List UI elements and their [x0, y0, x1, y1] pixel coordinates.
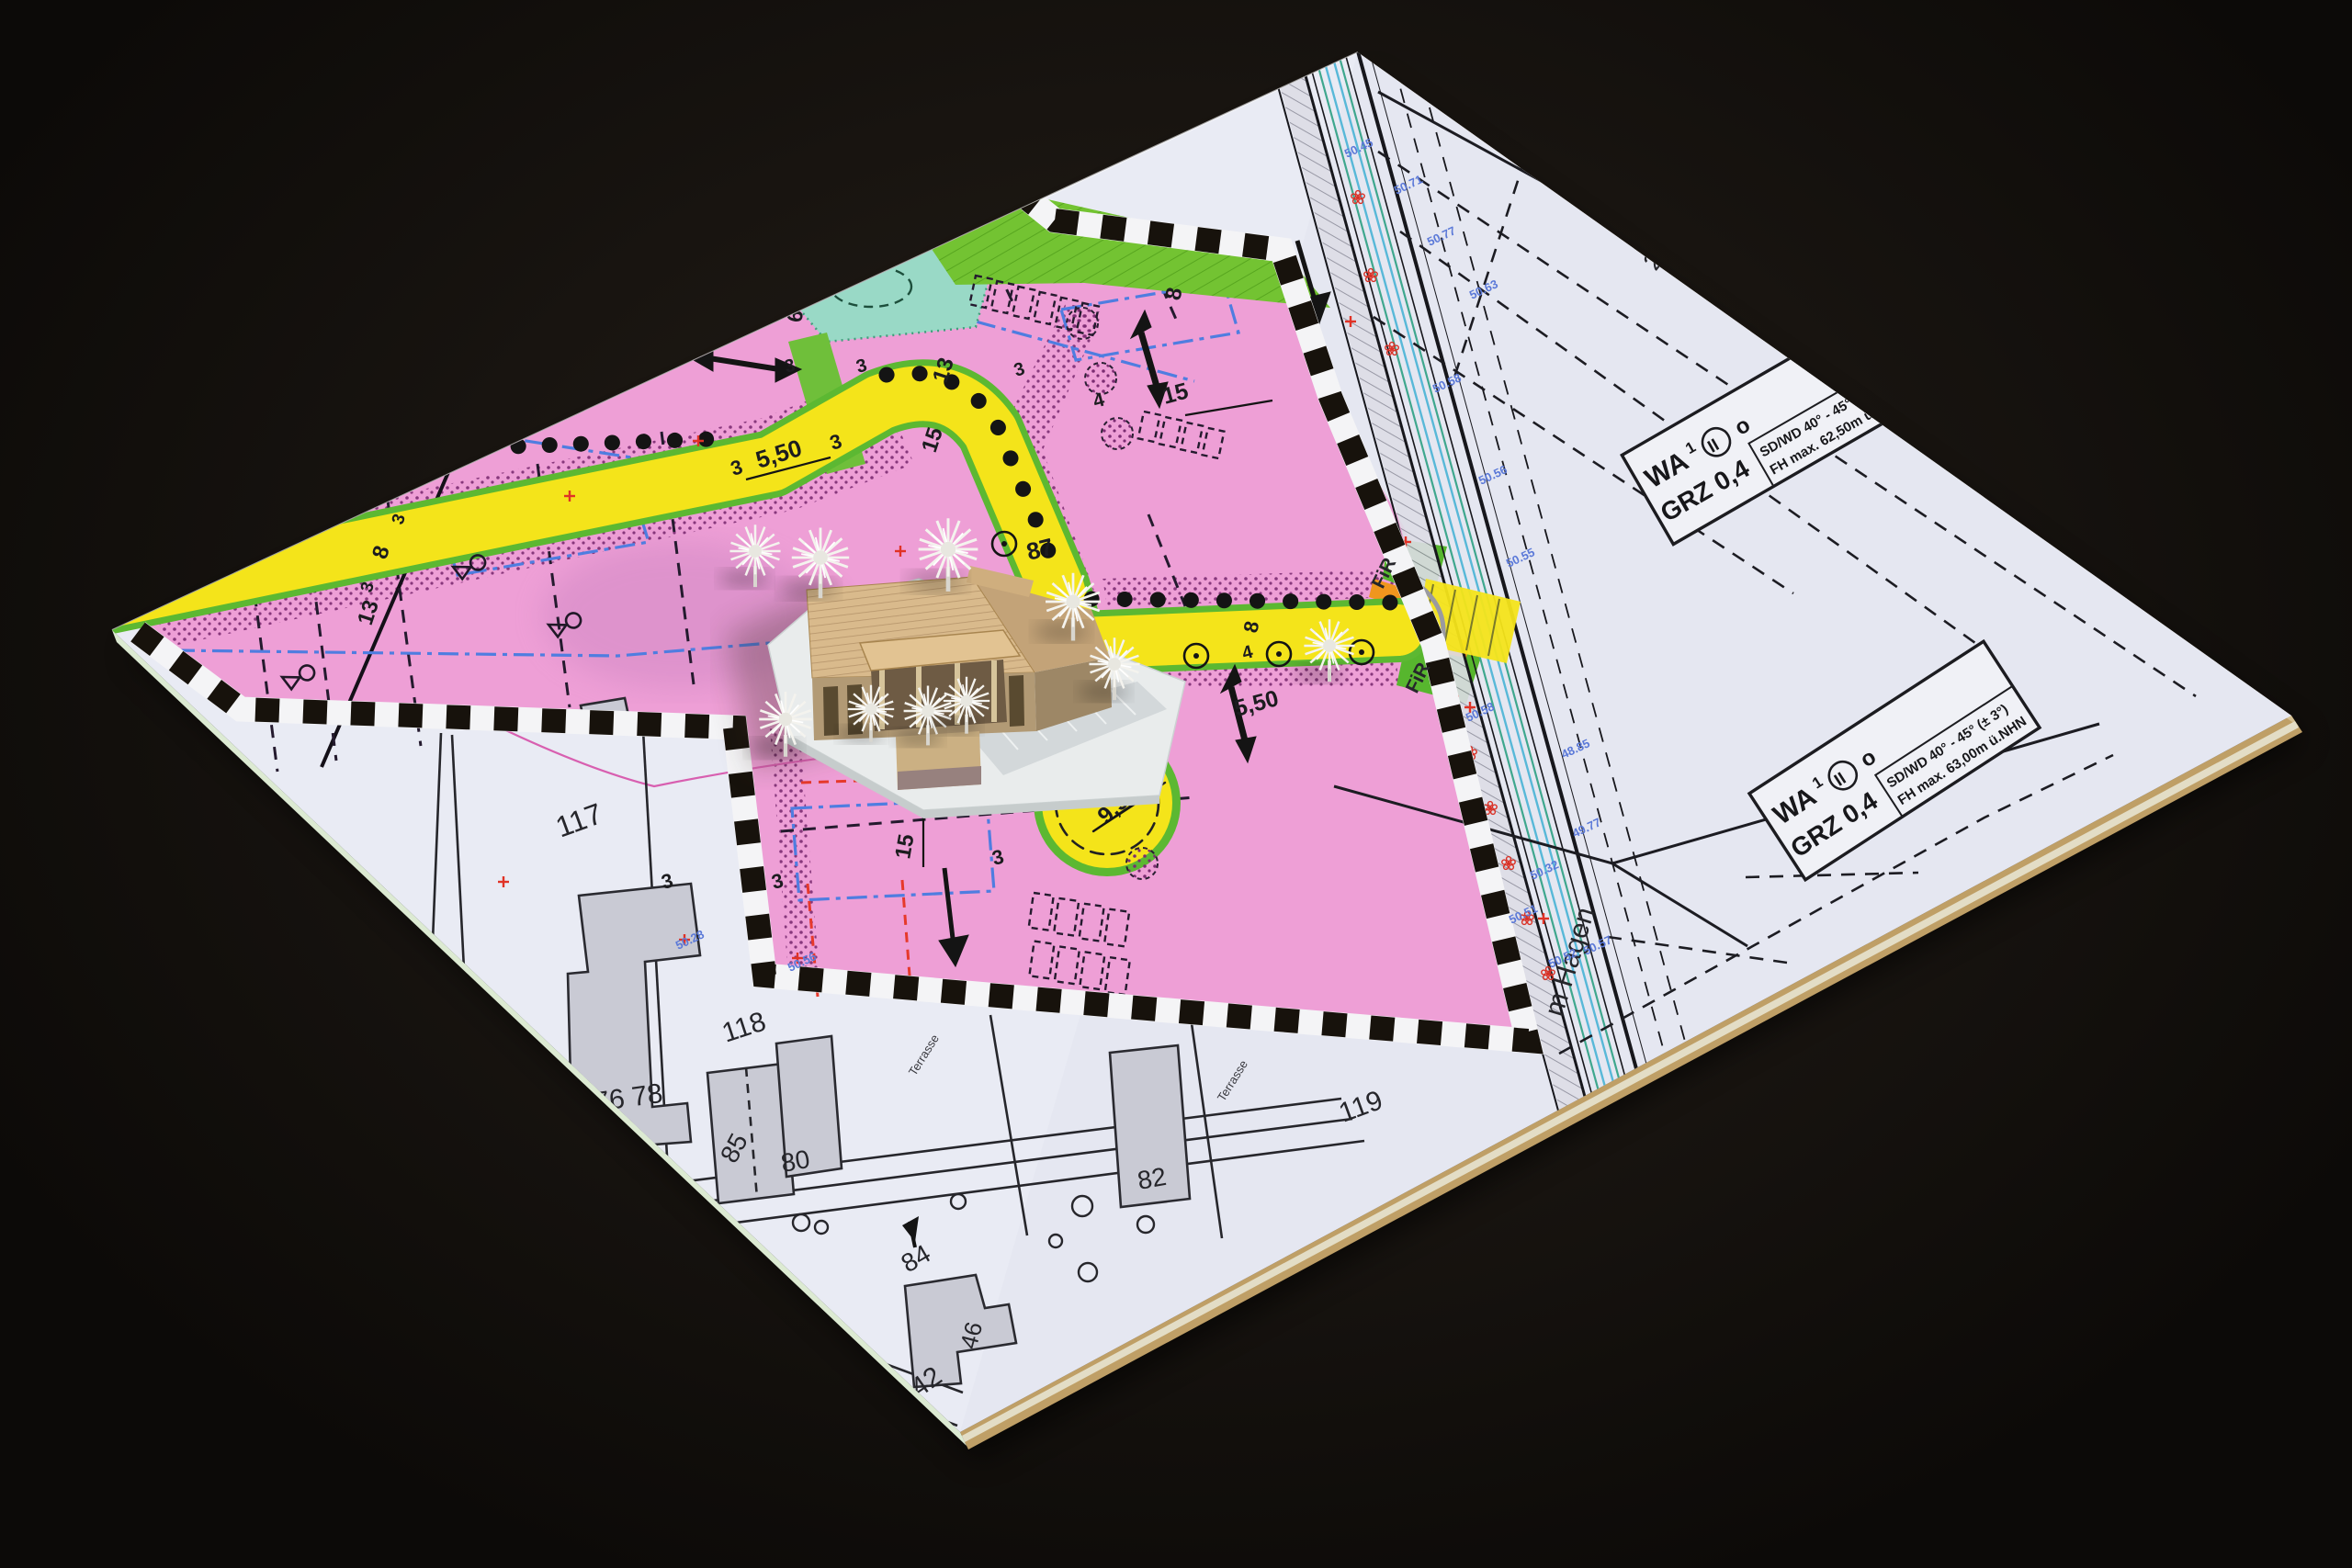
- dim-15-env: 15: [890, 832, 919, 861]
- parcel-80: 80: [779, 1145, 812, 1178]
- scene-canvas: WA 1 II o GRZ 0,4 SD/WD 40° - 45° (± 3°)…: [0, 0, 2352, 1568]
- photo-of-zoning-plan-with-model: WA 1 II o GRZ 0,4 SD/WD 40° - 45° (± 3°)…: [0, 0, 2352, 1568]
- parcel-82: 82: [1136, 1162, 1169, 1195]
